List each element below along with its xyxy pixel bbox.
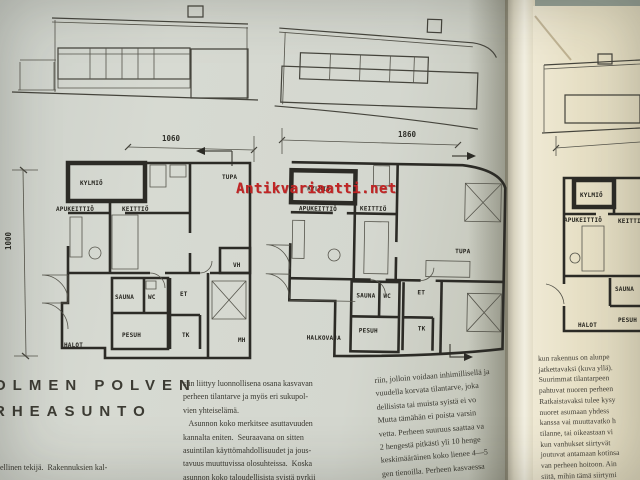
book-photo: 1060 1860 1000: [0, 0, 640, 480]
room-label-apukeittio: APUKEITTIÖ: [56, 206, 94, 213]
room-label-apukeittio: APUKEITTIÖ: [299, 205, 337, 213]
elevation-drawing-left: [8, 2, 264, 106]
room-label-halot: HALOT: [64, 342, 83, 349]
room-label-pesuh: PESUH: [359, 327, 378, 334]
room-label-sauna: SAUNA: [615, 286, 634, 293]
room-label-halkovaja: HALKOVAJA: [307, 335, 342, 343]
dimension-label-plan1-height: 1000: [4, 232, 13, 250]
room-label-sauna: SAUNA: [115, 294, 134, 301]
room-label-vh: VH: [233, 262, 241, 269]
body-text-column-3: riin, jolloin voidaan inhimillisellä jav…: [374, 363, 516, 480]
article-title-line1: OLMEN POLVEN: [0, 377, 197, 394]
text-line: dellinen tekijä. Rakennuksien kal-: [0, 461, 176, 474]
text-line: siitä, mihin tämä siirtymi: [541, 469, 640, 480]
room-label-et: ET: [417, 289, 425, 296]
floor-plan-right-page: KYLMIÖ APUKEITTIÖ KEITTIÖ SAUNA HALOT PE…: [556, 166, 640, 336]
elevation-drawing-middle: [274, 4, 510, 132]
outer-walls: [62, 163, 250, 358]
building-outline: [18, 6, 248, 99]
room-label-pesuh: PESUH: [618, 317, 637, 324]
building-outline: [277, 14, 498, 112]
window-band: [58, 48, 190, 79]
room-label-keittio: KEITTIÖ: [360, 205, 387, 212]
text-line: asunnon koko taloudellisista syistä pyrk…: [183, 471, 351, 480]
text-line: perheen tilantarve ja myös eri sukupol-: [183, 390, 351, 403]
room-label-sauna: SAUNA: [356, 292, 375, 299]
text-line: siin liittyy luonnollisena osana kasvava…: [183, 377, 351, 390]
room-label-apukeittio: APUKEITTIÖ: [564, 217, 602, 224]
article-title-line2: RHEASUNTO: [0, 403, 152, 420]
room-label-keittio: KEITTIÖ: [618, 218, 640, 225]
elevation-drawing-right-page: [542, 48, 640, 140]
ground-line: [542, 128, 640, 133]
room-label-kylmio: KYLMIÖ: [80, 180, 103, 187]
stairs: [112, 215, 138, 269]
dimension-line-right-page: [548, 134, 640, 156]
room-label-wc: WC: [148, 294, 156, 301]
room-label-tupa: TUPA: [455, 248, 471, 255]
floor-plan-left: KYLMIÖ APUKEITTIÖ KEITTIÖ TUPA SAUNA WC …: [50, 153, 258, 365]
inner-walls: [68, 163, 250, 358]
text-line: kannalta eniten. Seuraavana on sitten: [183, 431, 351, 444]
room-label-mh: MH: [238, 337, 246, 344]
room-label-halot: HALOT: [578, 322, 597, 329]
dimension-label-plan1-width: 1060: [162, 134, 180, 143]
room-label-tk: TK: [182, 332, 190, 339]
stairs: [364, 221, 389, 273]
stairs: [582, 226, 604, 271]
dimension-line-1000: [8, 158, 34, 370]
room-label-pesuh: PESUH: [122, 332, 141, 339]
room-labels: KYLMIÖ APUKEITTIÖ KEITTIÖ SAUNA HALOT PE…: [564, 192, 640, 329]
watermark-text: Antikvariaatti.net: [236, 181, 397, 197]
room-label-kylmio: KYLMIÖ: [580, 192, 603, 199]
railing-hatch: [565, 95, 640, 123]
fixture-circle: [570, 253, 580, 263]
railing-hatch: [281, 66, 478, 109]
room-label-tupa: TUPA: [222, 174, 237, 181]
text-line: vien yhteiselämä.: [183, 404, 351, 417]
text-line: tavuus muuttuvissa olosuhteissa. Koska: [183, 457, 351, 470]
building-outline: [544, 54, 640, 132]
room-label-et: ET: [180, 291, 188, 298]
room-label-tk: TK: [418, 325, 426, 332]
body-text-column-2: siin liittyy luonnollisena osana kasvava…: [183, 377, 351, 480]
dimension-label-plan2-width: 1860: [398, 130, 416, 139]
fixtures: [70, 165, 246, 319]
ground-line: [12, 92, 258, 100]
room-labels: KYLMIÖ APUKEITTIÖ KEITTIÖ TUPA SAUNA WC …: [297, 185, 472, 344]
railing-hatch: [58, 49, 248, 98]
body-text-column-1: dellinen tekijä. Rakennuksien kal-: [0, 461, 176, 474]
right-page-text-column: kun rakennus on alunpejatkettavaksi (kuv…: [538, 351, 640, 480]
room-label-keittio: KEITTIÖ: [122, 206, 149, 213]
room-label-wc: WC: [383, 293, 391, 300]
text-line: asuintilan käyttömahdollisuudet ja jous-: [183, 444, 351, 457]
text-line: Asunnon koko merkitsee asuttavuuden: [183, 417, 351, 430]
